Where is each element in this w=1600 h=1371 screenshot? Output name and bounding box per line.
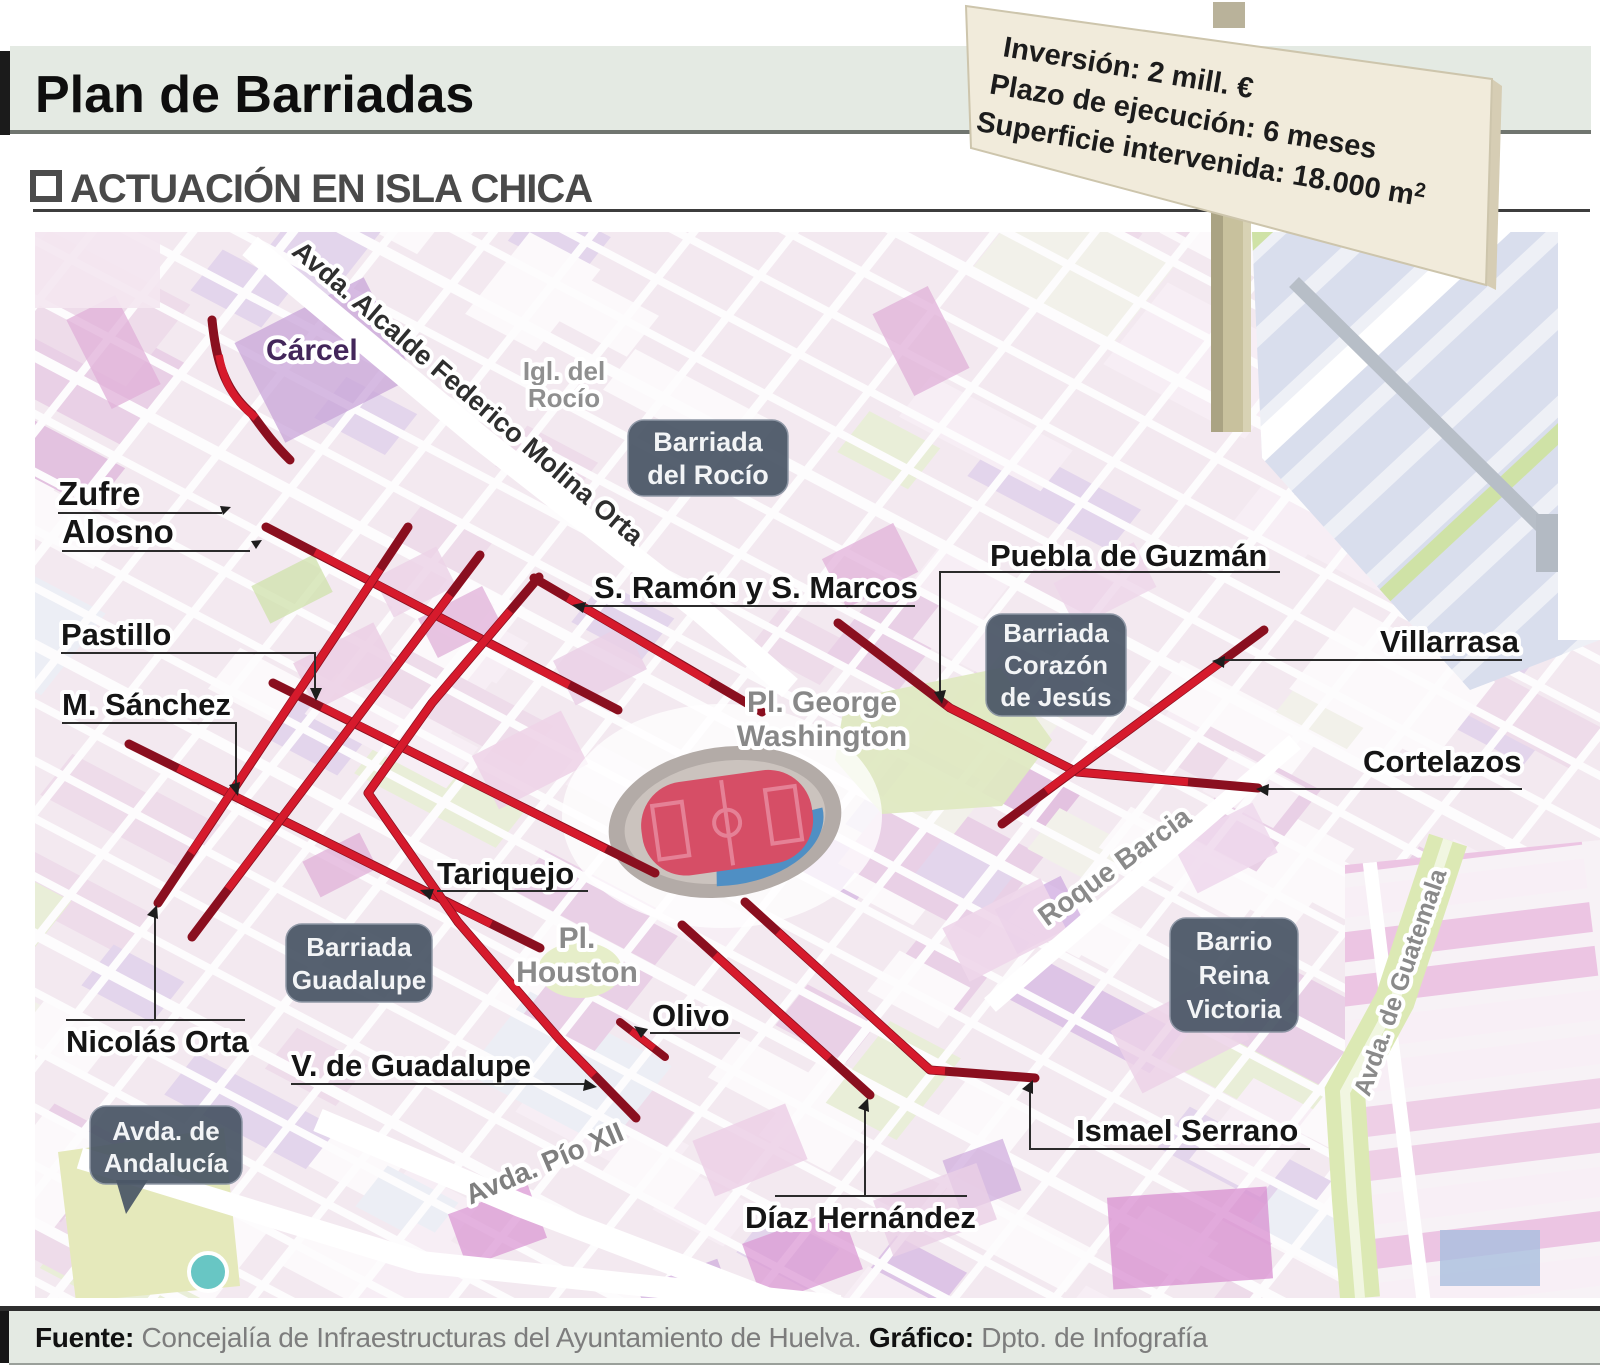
svg-text:Andalucía: Andalucía (104, 1148, 229, 1178)
svg-text:Olivo: Olivo (652, 998, 730, 1033)
svg-text:Pl.: Pl. (559, 922, 596, 955)
svg-text:Victoria: Victoria (1187, 994, 1282, 1024)
svg-text:Avda. de: Avda. de (112, 1116, 219, 1146)
svg-text:Houston: Houston (516, 956, 638, 989)
svg-text:Tariquejo: Tariquejo (437, 856, 574, 891)
svg-text:Barrio: Barrio (1196, 926, 1273, 956)
svg-text:Washington: Washington (737, 720, 908, 753)
svg-text:Barriada: Barriada (306, 932, 412, 962)
svg-text:Díaz Hernández: Díaz Hernández (745, 1200, 976, 1235)
svg-text:Nicolás Orta: Nicolás Orta (66, 1024, 249, 1059)
svg-text:Cortelazos: Cortelazos (1363, 744, 1521, 779)
svg-text:Guadalupe: Guadalupe (292, 965, 426, 995)
svg-text:Reina: Reina (1199, 960, 1270, 990)
svg-text:V. de Guadalupe: V. de Guadalupe (291, 1048, 531, 1083)
svg-text:Ismael Serrano: Ismael Serrano (1076, 1113, 1298, 1148)
